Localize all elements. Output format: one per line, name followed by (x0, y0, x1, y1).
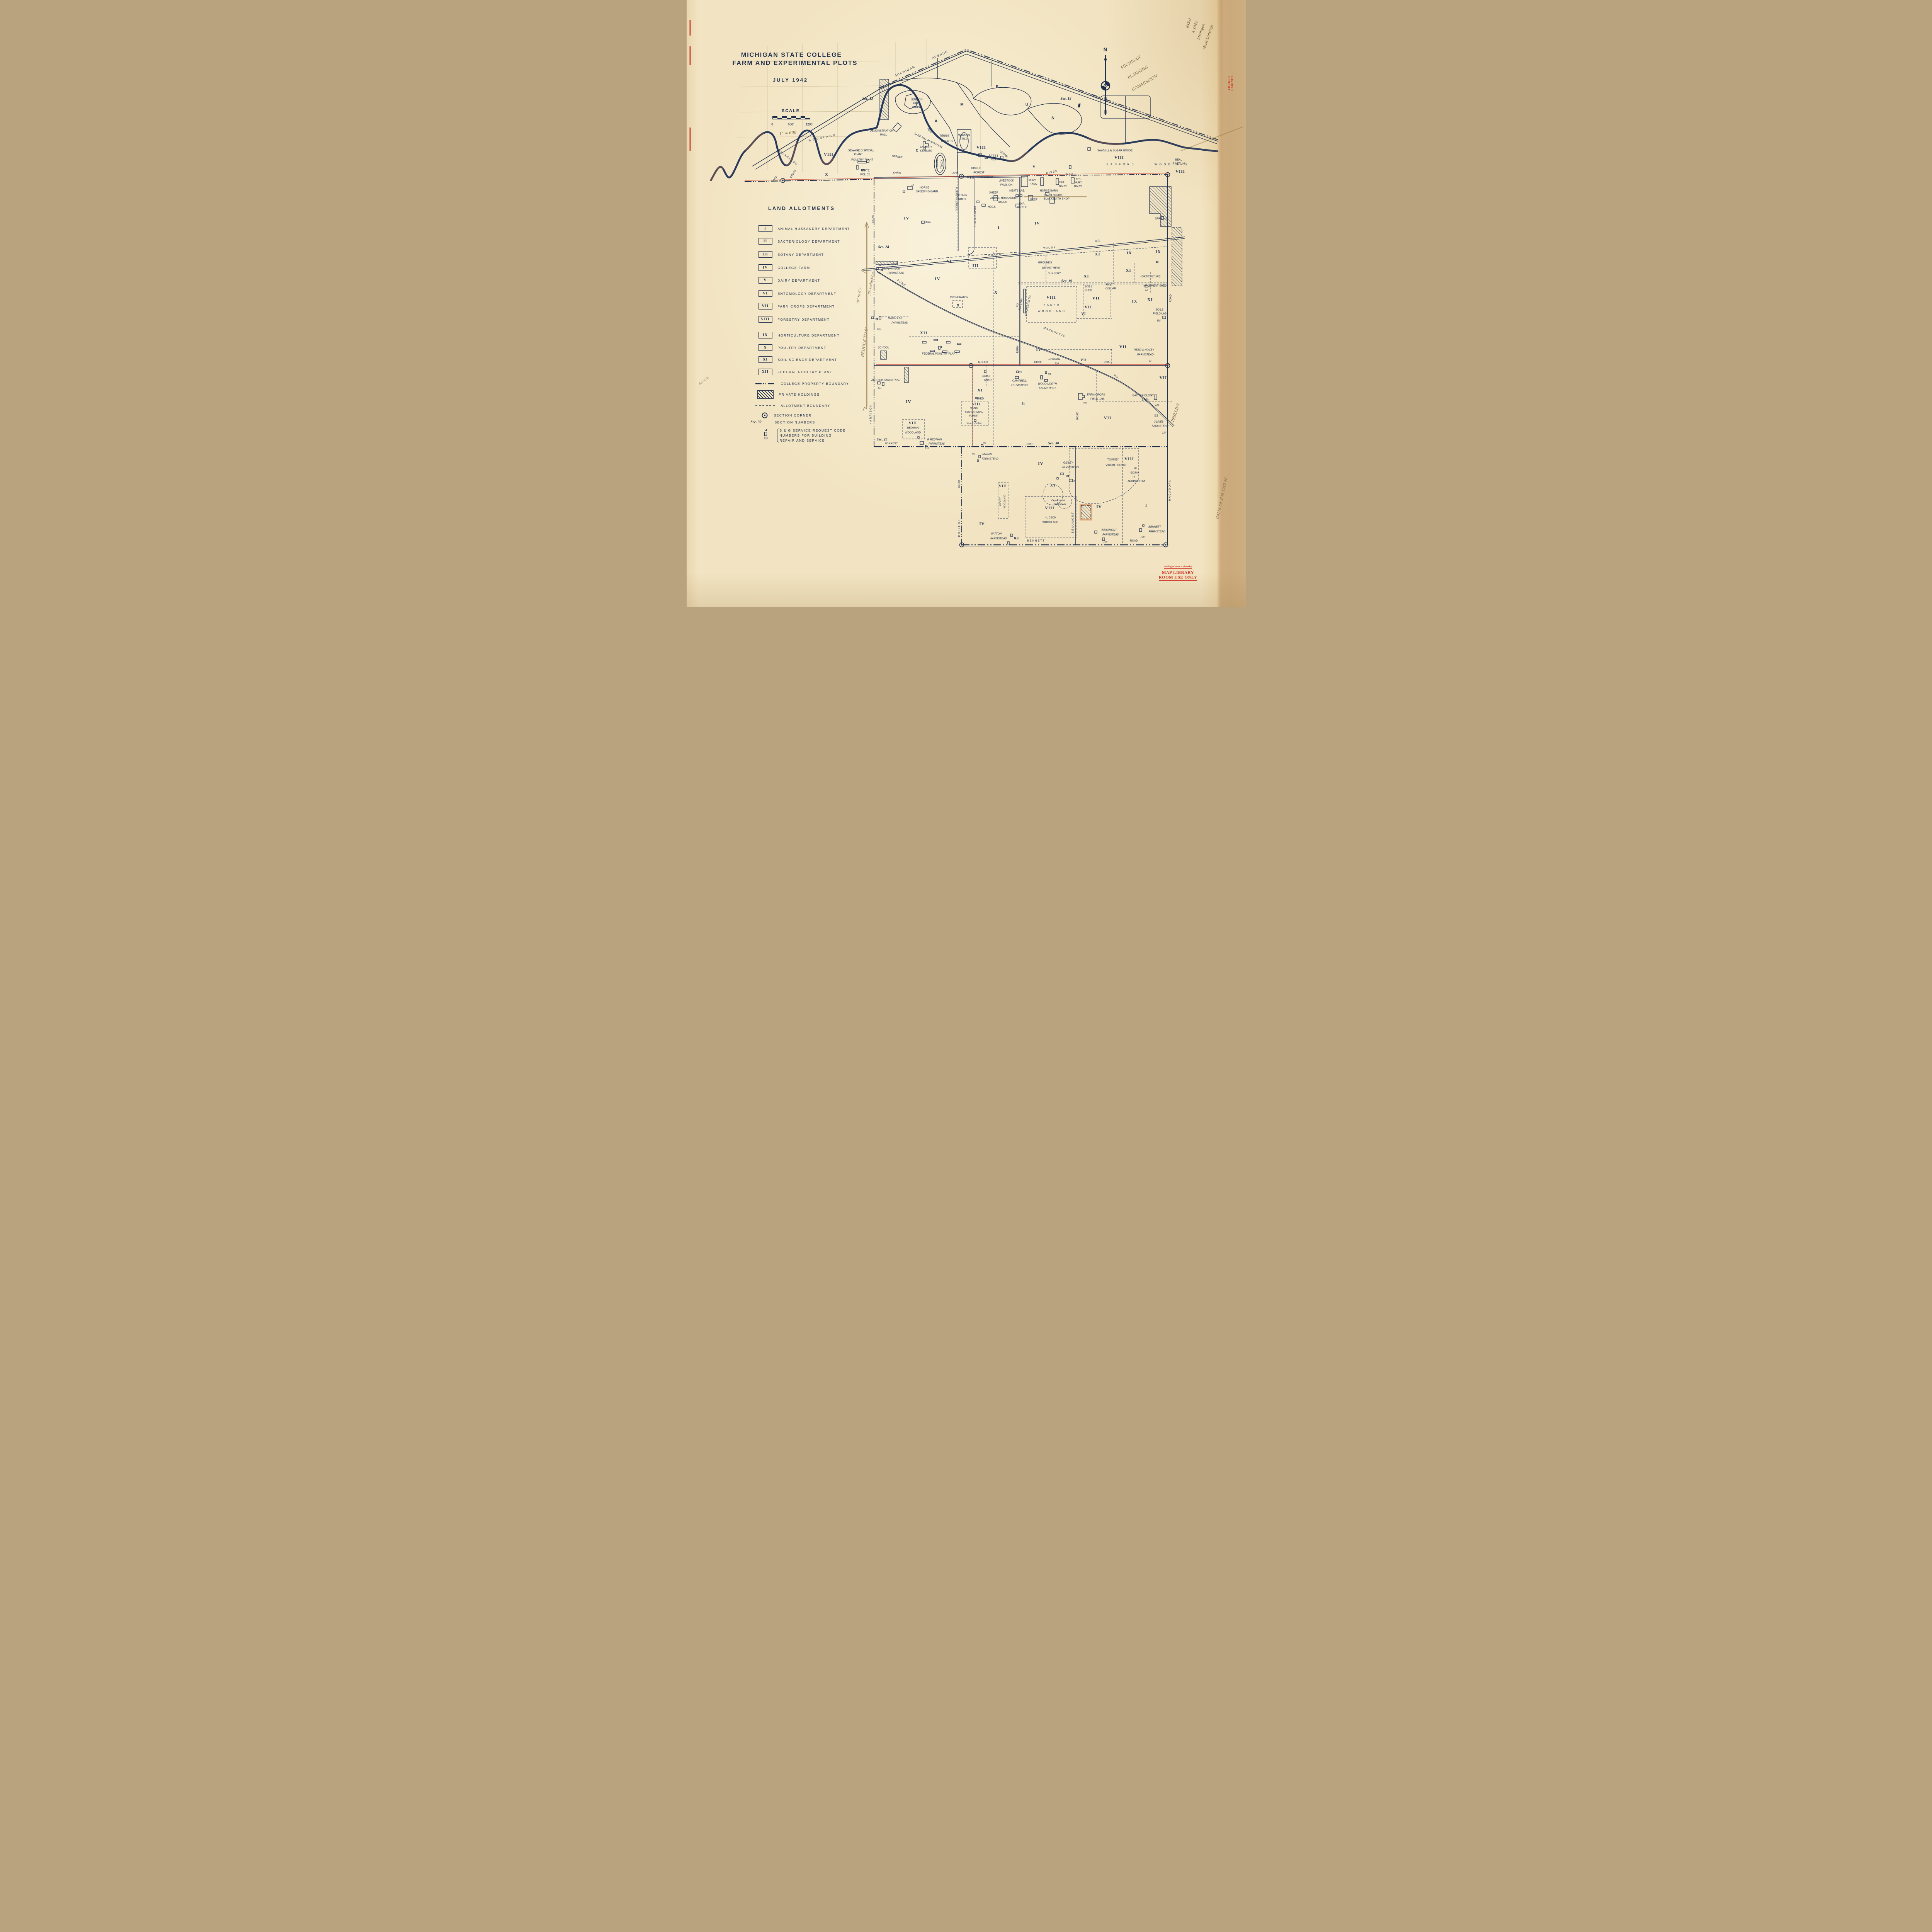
horse-breeding-barn-label: BREEDING BARN (916, 190, 938, 193)
mount-hope-label: MOUNT (978, 361, 988, 364)
exp-cattle-label: CATTLE (1017, 206, 1027, 209)
allotment-marker-iv: IV (935, 277, 940, 281)
baker-woodland-label: BAKER (1044, 304, 1061, 307)
blacksmith-shop-label: BLACKSMITH SHOP (1044, 198, 1070, 201)
shaw-lane-label: SHAW (893, 172, 901, 175)
allotment-marker-vi: VI (947, 259, 951, 263)
bg-number: 133 (925, 447, 929, 450)
allotment-marker-iv: IV (1038, 461, 1043, 466)
bull-barn-label: BULL (1060, 181, 1066, 184)
exp-cattle-label: EXP. (1019, 203, 1025, 206)
bg-number: 121 (1155, 403, 1159, 406)
hutchinson-farmstead-label: HUTCHINSON (882, 268, 900, 270)
dairy-barn-label: BARN (1030, 183, 1037, 186)
running-track-label: TRACK (940, 160, 943, 169)
legend-item: IANIMAL HUSBANDRY DEPARTMENT (759, 225, 850, 232)
legend-section-numbers: Sec. 30 SECTION NUMBERS (751, 420, 815, 424)
legend-item: IIBACTERIOLOGY DEPARTMENT (759, 238, 840, 245)
gidley-farmstead-label: GIDLEY (1063, 462, 1073, 464)
bg-number: 131 (878, 386, 882, 389)
minnis-forest-label: RECREATIONAL (965, 411, 983, 413)
allotment-marker-viii: VIII (1124, 457, 1134, 461)
campus-letter: M (960, 103, 963, 107)
allotment-marker-iv: IV (904, 216, 909, 221)
root-cellar-label: CELLAR (1105, 287, 1116, 290)
beef-label: BEEF (1030, 199, 1037, 201)
jenison-label: FIELD (913, 102, 921, 105)
allotment-marker-i: I (1145, 503, 1147, 508)
beaumont-road-label: BEAUMONT (1071, 512, 1074, 533)
allotment-marker-iv: IV (979, 522, 985, 526)
expl-dairy-barn-label: BARN (1074, 185, 1082, 188)
hogs-label: HOGS (988, 206, 996, 209)
minnis-farmstead-label: FARMSTEAD (982, 458, 998, 461)
campbell-farmstead-label: CAMPBELL (1012, 380, 1027, 383)
legend-item: VIENTOMOLOGY DEPARTMENT (759, 290, 837, 297)
allotment-marker-vii: VII (1160, 376, 1167, 380)
soils-field-lab-label: SOILS (1155, 309, 1163, 311)
macklin-field-label: MACKLIN (958, 134, 970, 137)
beal-pinetum-label: PINETUM (1173, 163, 1185, 165)
legend-section-corner: SECTION CORNER (761, 412, 812, 419)
bennett-road-label: ROAD (1130, 540, 1138, 543)
legend-item: IXHORTICULTURE DEPARTMENT (759, 332, 840, 338)
sigma-pi-arboretum-label: SIGMA (1130, 472, 1139, 474)
bg-number: 95 (878, 272, 881, 275)
allotment-marker-x: X (825, 172, 828, 177)
macallan-farmstead-label: FARMSTEAD (891, 322, 908, 325)
allotment-marker-xi: XI (1095, 252, 1100, 257)
tennis-courts-label: TENNIS (940, 135, 950, 138)
botany-shed-label: SHED (958, 198, 966, 201)
sigma-pi-arboretum-label: ARBORETUM (1128, 480, 1145, 483)
road-label-vertical: ROAD (872, 215, 874, 223)
bg-number: 70 (911, 184, 914, 187)
legend-item: VIIFARM CROPS DEPARTMENT (759, 303, 835, 310)
shaw-lane-label: LANE (951, 172, 958, 175)
reed-hovey-farmstead-label: REED & HOVEY (1134, 349, 1154, 352)
bogue-forest-nursery-label: FOREST (973, 172, 984, 174)
demonstration-hall-label: HALL (880, 134, 887, 136)
beal-pinetum-label: BEAL (1175, 159, 1182, 162)
macallan-farmstead-label: MACALLAN (888, 317, 903, 320)
dairy-barn-label: DAIRY (1028, 179, 1036, 182)
reed-hovey-farmstead-label: FARMSTEAD (1137, 354, 1154, 356)
soils-shed-label: SOILS (982, 375, 990, 378)
legend-item: IIIBOTANY DEPARTMENT (759, 251, 824, 258)
allotment-marker-ix: IX (1155, 250, 1161, 254)
private-holdings-sample (757, 390, 774, 399)
allotment-marker-xi: XI (1126, 268, 1131, 273)
north-arrow (1078, 55, 1110, 115)
barn-label: BARN (1155, 218, 1162, 220)
map-title-date: JULY 1942 (773, 77, 808, 83)
bg-number: 108 (1082, 402, 1087, 405)
incinerator-label: INCINERATOR (950, 296, 969, 299)
bg-number: 94 (1048, 372, 1051, 376)
glines-farmstead-label: GLINES (1154, 421, 1164, 423)
section-25: Sec. 25 (877, 438, 888, 442)
bg-number: 120 (1054, 362, 1059, 365)
horse-barn-label: HORSE BARN (1040, 190, 1058, 192)
msu-stamp-line1: Michigan State University (1164, 565, 1192, 569)
hudson-woodland-label: WOODLAND (1043, 521, 1058, 524)
bg-number: 119 (1165, 217, 1168, 220)
redman-woodland-label: REDMAN (907, 427, 918, 430)
legend-item: XISOIL SCIENCE DEPARTMENT (759, 356, 837, 363)
allotment-marker-xi: XI (1147, 298, 1153, 302)
federal-poultry-plant-label: FEDERAL POULTRY PLANT (922, 353, 957, 355)
bull-barn-label: BARN (1059, 185, 1066, 188)
map-title-line1: MICHIGAN STATE COLLEGE (741, 52, 842, 59)
beaumont-farmstead-label: BEAUMONT (1102, 529, 1117, 532)
expl-dairy-barn-label: EXP'L. (1074, 178, 1082, 181)
campus-letter: P (996, 85, 998, 89)
meats-lab-label: MEATS LAB. (1009, 190, 1025, 192)
bg-number: 14 (1145, 289, 1148, 292)
minnis-forest-label: SHED (976, 398, 984, 400)
allotment-marker-iv: IV (1036, 347, 1041, 352)
bg-number: 129 (1103, 541, 1107, 544)
allotment-marker-iv: IV (1034, 221, 1040, 226)
road-label-vertical: ROAD (958, 480, 961, 488)
harrison-road-label: HARRISON (869, 404, 872, 425)
redman-label: REDMAN (1048, 358, 1060, 361)
allotment-marker-viii: VIII (976, 145, 986, 150)
soils-shed-label: SHED (984, 379, 992, 382)
expl-dairy-barn-label: DAIRY (1074, 182, 1082, 184)
mount-hope-label: HOPE (1034, 361, 1042, 364)
farm-crops-field-lab-label: FIELD LAB. (1090, 398, 1105, 401)
bg-number: 127 (1162, 431, 1166, 434)
sigma-pi-arboretum-label: XI (1134, 467, 1137, 470)
section-number-sample: Sec. 30 (751, 420, 769, 424)
bg-number: 99 (972, 453, 975, 456)
legend-allotment-boundary: ALLOTMENT BOUNDARY (755, 404, 830, 408)
section-19: Sec. 19 (1061, 279, 1072, 283)
campus-letter: C (916, 149, 918, 153)
waa-cabin-label: W.A.A. CABIN (966, 423, 981, 425)
msu-stamp-line2: MAP LIBRARY (1162, 570, 1194, 575)
soils-shed-label: SHED (1085, 289, 1092, 292)
toumey-virgin-forest-label: VIRGIN FOREST (1105, 464, 1126, 467)
allotment-marker-viii: VIII (1114, 155, 1124, 160)
macklin-field-label: FIELD (960, 138, 968, 141)
scale-tick-600: 600' (788, 123, 794, 126)
map-title-line2: FARM AND EXPERIMENTAL PLOTS (733, 60, 858, 67)
bacteriology-barn-label: BACTERIOLOGY (1133, 395, 1154, 397)
allotment-marker-viii: VIII (1175, 169, 1185, 174)
gidley-woodland-label: WOODLAND (1004, 495, 1006, 508)
msu-stamp-line3: ROOM USE ONLY (1159, 575, 1197, 581)
cavalry-stables-label: STABLES (920, 150, 932, 153)
f-redman-farmstead-label: FARMSTEAD (929, 443, 945, 446)
section-corner-sample (761, 412, 769, 419)
bg-number: 130 (1015, 537, 1019, 540)
minnis-farmstead-label: MINNIS (982, 453, 992, 456)
allotment-marker-xi: XI (977, 388, 983, 393)
road-label-vertical: ROAD (1076, 412, 1079, 420)
running-track-label: RUNNING (936, 158, 939, 171)
property-boundary-sample (755, 382, 776, 385)
allotment-marker-viii: VIII (989, 154, 998, 158)
hagadorn-road-label: HAGADORN (1168, 479, 1171, 501)
sigma-pi-arboretum-label: PI (1133, 476, 1135, 479)
legend-property-boundary: COLLEGE PROPERTY BOUNDARY (755, 382, 849, 386)
minnis-forest-label: FOREST (969, 415, 978, 417)
sheep-label: SHEEP (989, 192, 998, 194)
allotment-boundaries (879, 178, 1173, 545)
allotment-marker-xi: XI (1050, 483, 1055, 488)
demonstration-hall-label: DEMONSTRATION (870, 130, 893, 133)
minnis-forest-label: MINNIS (970, 407, 978, 410)
gidley-woodland-label: GIDLEY (1000, 497, 1002, 506)
patton-farmstead-label: FARMSTEAD (990, 537, 1007, 540)
map-sheet: MICHIGAN STATE COLLEGE FARM AND EXPERIME… (687, 0, 1246, 607)
hudson-woodland-label: HUDSON (1044, 517, 1056, 519)
bg-number: 95 (1072, 480, 1075, 483)
bacteriology-barn-label: BARN (1142, 399, 1149, 401)
aldrich-farmstead-label: ALDRICH FARMSTEAD (871, 379, 900, 382)
patton-farmstead-label: PATTON (991, 533, 1002, 536)
redman-woodland-label: WOODLAND (905, 432, 921, 434)
woodworth-farmstead-label: WOODWORTH (1038, 383, 1057, 386)
soils-field-lab-label: FIELD LAB. (1153, 313, 1167, 315)
bg-number: 126 (877, 328, 881, 331)
reduction-line (861, 222, 869, 411)
grand-trunk-label: R.R. (1095, 240, 1100, 243)
grounds-dept-nursery-label: NURSERY (1048, 272, 1061, 275)
bg-number: 99 (983, 441, 986, 444)
bg-number: 97 (1149, 359, 1151, 362)
bg-number: 128 (1140, 536, 1145, 539)
allotment-marker-vii: VII (1092, 296, 1100, 301)
mount-hope-label: ROAD (1104, 361, 1111, 364)
f-redman-farmstead-label: F. REDMAN (927, 439, 942, 441)
allotment-marker-ii: II (1022, 401, 1025, 405)
sanford-woodland-label: SANFORD (1106, 163, 1136, 166)
jenison-label: HOUSE (912, 106, 922, 109)
cavalry-stables-label: CAVALRY (920, 146, 932, 149)
allotment-marker-xi: XI (1083, 274, 1089, 279)
barn-label: BARN (924, 221, 931, 224)
sewage-disposal-label: SEWAGE DISPOSAL (848, 150, 874, 152)
scale-heading: SCALE (782, 109, 800, 113)
allotment-marker-viii: VIII (824, 152, 833, 157)
legend-item: VIIIFORESTRY DEPARTMENT (759, 316, 830, 323)
allotment-marker-vii: VII (1085, 305, 1092, 310)
state-police-label: STATE (861, 170, 870, 172)
sewage-disposal-label: PLANT (854, 153, 863, 156)
experimental-watersheds-label: Experimental (1051, 500, 1065, 502)
legend-private-holdings: PRIVATE HOLDINGS (757, 390, 820, 399)
soils-shed-label: SOILS (1084, 286, 1092, 288)
livestock-pavilion-label: PAVILION (1000, 184, 1012, 187)
bg-code-sample: 128 (760, 428, 772, 440)
section-18: Sec. 18 (1061, 97, 1071, 101)
poultry-plant-label: POULTRY PLANT (851, 159, 873, 162)
animal-husbandry-barns-label: BARNS (998, 201, 1007, 204)
woodworth-farmstead-label: FARMSTEAD (1039, 387, 1056, 390)
allotment-boundary-sample (755, 404, 776, 407)
allotment-marker-viii: VIII (1046, 295, 1056, 300)
pmrr-spur-label: P. M. R.R. SPUR (974, 206, 976, 227)
scale-tick-0: 0 (771, 123, 773, 126)
allotment-marker-x: X (994, 290, 998, 295)
allotment-marker-viii: VIII (999, 484, 1007, 488)
school-label: SCHOOL (878, 347, 889, 349)
grounds-dept-nursery-label: GROUNDS (1038, 262, 1052, 264)
livestock-pavilion-label: LIVESTOCK (999, 180, 1014, 182)
sawmill-sugar-house-label: SAWMILL & SUGAR HOUSE (1097, 150, 1133, 152)
allotment-marker-v: V (1033, 165, 1036, 169)
allotment-marker-i: I (998, 226, 1000, 230)
allotment-marker-viii: VIII (967, 175, 975, 179)
hutchinson-farmstead-label: FARMSTEAD (888, 272, 904, 275)
allotment-marker-vi: VI (1081, 312, 1086, 316)
forrest-road-label: FORREST (885, 442, 898, 445)
bennett-farmstead-label: FARMSTEAD (1149, 531, 1165, 533)
bogue-forest-nursery-label: BOGUE (971, 167, 981, 170)
campus-letter: S (1051, 116, 1054, 121)
horticulture-label: HORTICULTURE (1139, 276, 1160, 278)
scale-tick-1200: 1200' (806, 123, 813, 126)
allotment-marker-vii: VII (1119, 345, 1127, 349)
legend-item: IVCOLLEGE FARM (759, 264, 810, 271)
botany-shed-label: BOTANY (956, 194, 967, 197)
campus-letter: A (935, 119, 937, 124)
allotment-marker-ix: IX (1132, 299, 1137, 304)
allotment-marker-iv: IV (1096, 505, 1102, 509)
farm-crops-field-lab-label: FARM CROPS (1087, 394, 1105, 396)
toumey-virgin-forest-label: TOUMEY (1107, 459, 1119, 461)
allotment-marker-vii: VII (1104, 416, 1112, 420)
legend-item: XIIFEDERAL POULTRY PLANT (759, 369, 833, 375)
road-label-vertical: ROAD (1169, 294, 1172, 302)
locked-cabinet-stamp: LOCKED CABINET (1228, 76, 1234, 91)
beaumont-farmstead-label: FARMSTEAD (1102, 534, 1119, 536)
baker-woodland-label: WOODLAND (1038, 310, 1066, 313)
bg-number: 118 (1157, 319, 1161, 322)
allotment-marker-ii: II (1154, 413, 1158, 418)
scale-bar (772, 116, 810, 119)
jenison-label: JENISON (911, 99, 922, 101)
grounds-dept-nursery-label: DEPARTMENT (1042, 267, 1061, 270)
wkar-label: W K A R (1065, 173, 1075, 176)
section-13: Sec. 13 (862, 97, 873, 101)
campbell-farmstead-label: FARMSTEAD (1011, 384, 1028, 387)
gidley-farmstead-label: FARMSTEAD (1062, 466, 1079, 469)
forrest-road-label: ROAD (1026, 443, 1033, 446)
campus-letter: U (1026, 103, 1028, 107)
legend-item: XPOULTRY DEPARTMENT (759, 344, 827, 351)
state-police-label: POLICE (861, 173, 871, 176)
farm-office-label: FARM OFFICE (1044, 194, 1063, 197)
section-24: Sec. 24 (878, 245, 889, 249)
legend-bg-code: 128 B & G SERVICE REQUEST CODE NUMBERS F… (760, 428, 846, 443)
glines-farmstead-label: FARMSTEAD (1152, 425, 1168, 428)
allotment-marker-viii: VIII (1045, 506, 1054, 510)
tennis-courts-label: COURTS (941, 140, 952, 143)
north-label: N (1104, 47, 1107, 53)
bennett-farmstead-label: BENNETT (1148, 526, 1161, 529)
campus-drives (880, 58, 1150, 177)
farm-lane-label: FARM (1016, 345, 1019, 353)
section-30: Sec. 30 (1048, 442, 1059, 446)
college-road-label: COLLEGE (958, 519, 961, 537)
allotment-marker-ix: IX (1126, 251, 1132, 255)
allotment-marker-vii: VII (1080, 358, 1087, 362)
allotment-marker-viii: VIII (972, 402, 980, 406)
allotment-marker-iv: IV (906, 400, 911, 404)
bogue-forest-nursery-label: NURSERY (980, 176, 993, 179)
animal-husbandry-barns-label: ANIMAL HUSBANDRY (990, 197, 1018, 200)
root-cellar-label: ROOT (1106, 284, 1114, 286)
implement-shed-label: IMPLEMENT SHED (1143, 285, 1167, 287)
legend-item: VDAIRY DEPARTMENT (759, 277, 820, 284)
legend-symbol: I (759, 225, 772, 232)
horse-breeding-barn-label: HORSE (920, 187, 929, 189)
legend-heading: LAND ALLOTMENTS (768, 206, 835, 211)
bg-number: 93 (1019, 371, 1022, 374)
experimental-watersheds-label: Watersheds (1054, 503, 1066, 506)
allotment-marker-xii: XII (920, 331, 928, 335)
allotment-marker-iii: III (973, 264, 979, 268)
allotment-marker-viii: VIII (909, 421, 917, 425)
bennett-road-label: BENNETT (1027, 540, 1045, 543)
